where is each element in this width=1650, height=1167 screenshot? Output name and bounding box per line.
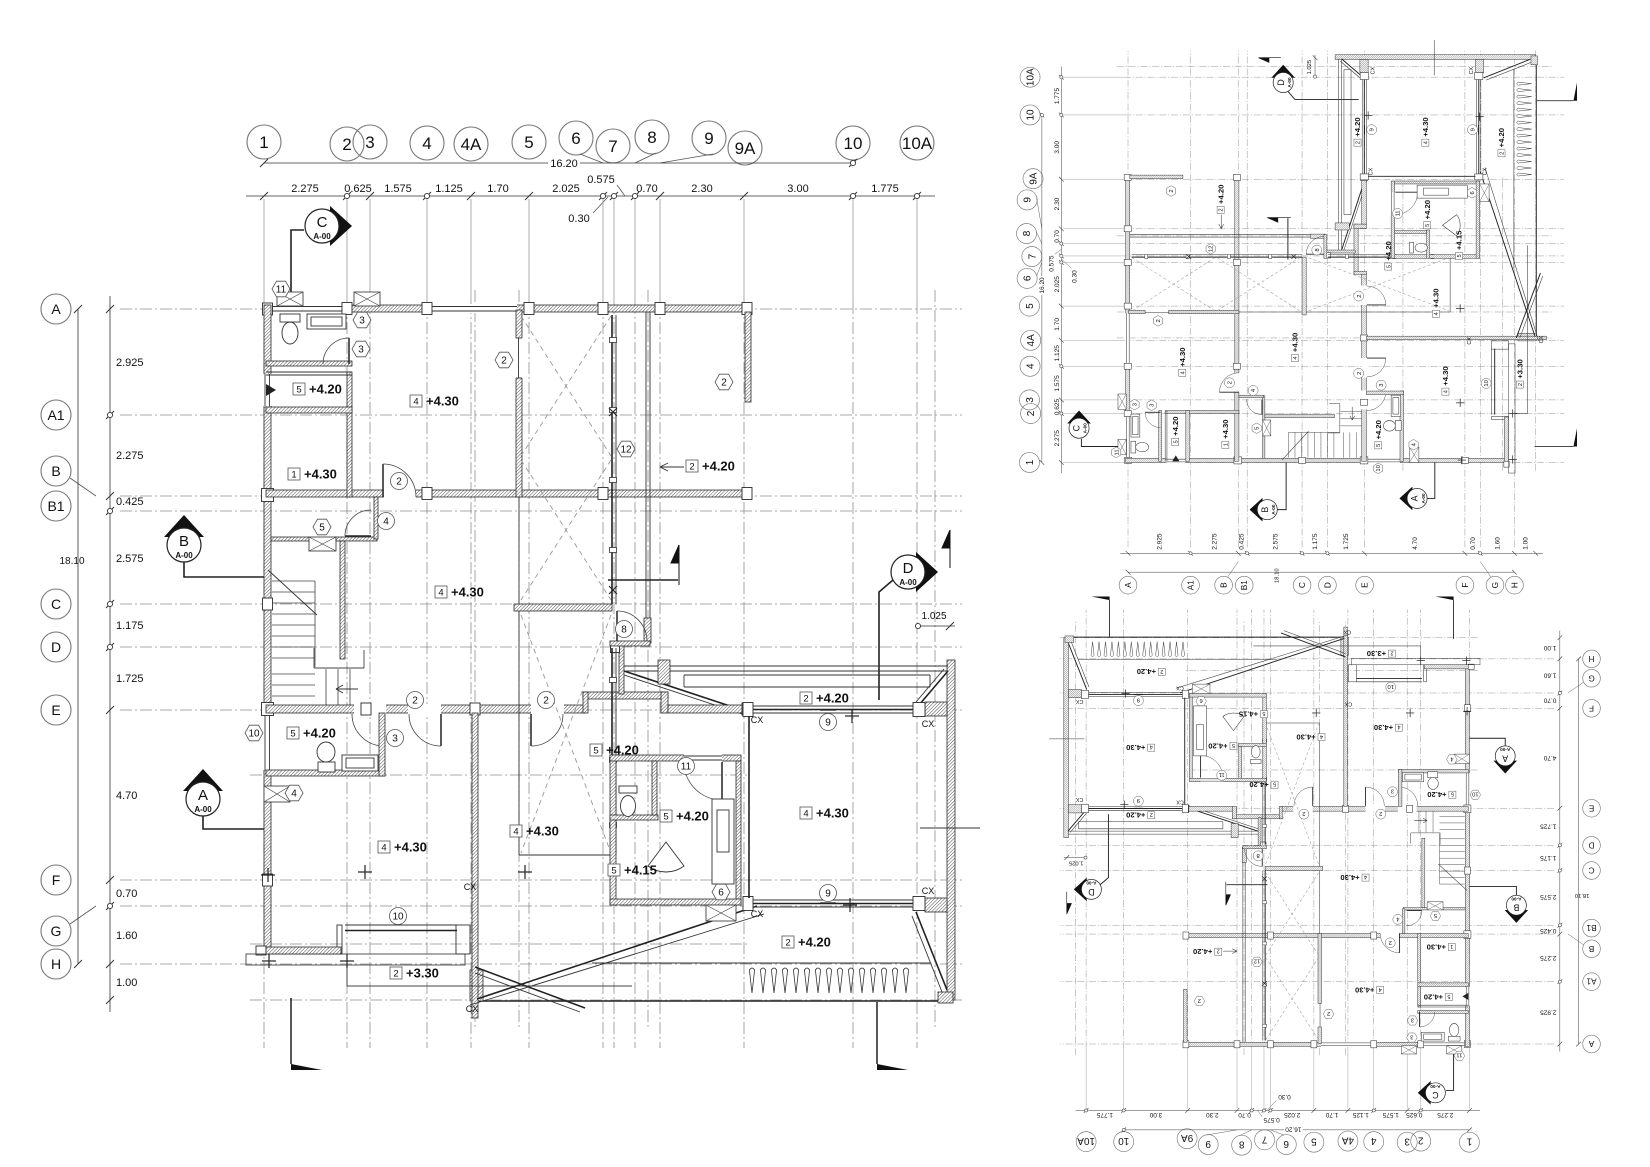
- svg-text:2: 2: [689, 462, 694, 473]
- svg-text:2.925: 2.925: [116, 357, 144, 369]
- svg-text:A-00: A-00: [194, 805, 212, 814]
- svg-text:+4.20: +4.20: [816, 691, 849, 706]
- svg-text:12: 12: [620, 445, 632, 456]
- svg-text:10A: 10A: [902, 134, 933, 153]
- svg-text:2: 2: [412, 696, 418, 707]
- svg-text:4A: 4A: [461, 135, 482, 154]
- svg-text:1.60: 1.60: [116, 930, 137, 942]
- svg-text:+4.30: +4.30: [304, 467, 337, 482]
- svg-text:+4.20: +4.20: [702, 459, 735, 474]
- svg-text:1.70: 1.70: [487, 183, 508, 195]
- svg-text:11: 11: [276, 285, 287, 296]
- svg-text:1: 1: [259, 133, 268, 152]
- svg-text:A1: A1: [47, 407, 64, 423]
- svg-text:C: C: [51, 596, 61, 612]
- svg-text:CX: CX: [922, 719, 935, 729]
- svg-text:2: 2: [501, 356, 507, 367]
- svg-text:+4.15: +4.15: [624, 863, 657, 878]
- svg-text:3: 3: [392, 734, 398, 745]
- svg-text:1.175: 1.175: [116, 620, 144, 632]
- svg-text:7: 7: [608, 137, 617, 156]
- svg-text:CX: CX: [464, 882, 477, 892]
- svg-text:2: 2: [721, 378, 727, 389]
- svg-text:E: E: [51, 702, 60, 718]
- svg-text:CX: CX: [751, 909, 764, 919]
- svg-text:2.275: 2.275: [291, 183, 319, 195]
- svg-text:5: 5: [611, 866, 616, 877]
- svg-text:2: 2: [342, 135, 351, 154]
- svg-text:CX: CX: [751, 715, 764, 725]
- svg-text:0.70: 0.70: [116, 888, 137, 900]
- svg-text:2.30: 2.30: [691, 183, 712, 195]
- svg-text:4: 4: [383, 517, 389, 528]
- svg-text:B1: B1: [47, 498, 64, 514]
- svg-text:5: 5: [663, 812, 668, 823]
- svg-text:CX: CX: [922, 886, 935, 896]
- svg-text:4: 4: [422, 134, 431, 153]
- svg-text:G: G: [51, 923, 62, 939]
- svg-text:+3.30: +3.30: [406, 966, 439, 981]
- svg-text:5: 5: [593, 746, 598, 757]
- svg-text:5: 5: [319, 523, 325, 534]
- svg-text:2: 2: [393, 969, 398, 980]
- svg-text:+4.30: +4.30: [526, 824, 559, 839]
- svg-text:A-00: A-00: [313, 232, 331, 241]
- svg-text:1.125: 1.125: [435, 183, 463, 195]
- svg-text:4.70: 4.70: [116, 790, 137, 802]
- svg-text:+4.30: +4.30: [451, 585, 484, 600]
- svg-text:1.725: 1.725: [116, 673, 144, 685]
- svg-text:4: 4: [291, 789, 297, 800]
- svg-text:+4.30: +4.30: [816, 806, 849, 821]
- svg-text:2.025: 2.025: [552, 183, 580, 195]
- svg-text:5: 5: [290, 729, 295, 740]
- svg-text:B: B: [179, 533, 189, 550]
- svg-text:F: F: [52, 872, 61, 888]
- svg-text:6: 6: [571, 129, 580, 148]
- svg-text:1.575: 1.575: [384, 183, 412, 195]
- svg-text:2: 2: [396, 477, 402, 488]
- svg-text:6: 6: [718, 888, 724, 899]
- svg-text:16.20: 16.20: [550, 158, 578, 170]
- svg-text:+4.20: +4.20: [798, 935, 831, 950]
- svg-text:CX: CX: [466, 1004, 479, 1014]
- svg-text:2.575: 2.575: [116, 553, 144, 565]
- svg-text:+4.20: +4.20: [676, 809, 709, 824]
- svg-text:1.00: 1.00: [116, 977, 137, 989]
- svg-text:1.025: 1.025: [921, 611, 946, 622]
- svg-text:10: 10: [844, 134, 863, 153]
- svg-text:A: A: [51, 301, 61, 317]
- svg-text:A-00: A-00: [899, 578, 917, 587]
- svg-text:3: 3: [358, 345, 364, 356]
- svg-text:4: 4: [438, 588, 443, 599]
- svg-text:10: 10: [248, 729, 260, 740]
- svg-text:+4.20: +4.20: [606, 743, 639, 758]
- svg-text:8: 8: [621, 625, 627, 636]
- svg-text:8: 8: [647, 128, 656, 147]
- svg-text:4: 4: [803, 809, 808, 820]
- svg-text:0.625: 0.625: [344, 183, 372, 195]
- svg-text:0.425: 0.425: [116, 496, 144, 508]
- svg-text:1.775: 1.775: [871, 183, 899, 195]
- svg-text:H: H: [51, 956, 61, 972]
- svg-text:3: 3: [365, 133, 374, 152]
- svg-text:10: 10: [392, 912, 404, 923]
- svg-text:C: C: [317, 214, 328, 231]
- svg-text:A-00: A-00: [175, 551, 193, 560]
- svg-text:0.575: 0.575: [587, 174, 615, 186]
- svg-text:5: 5: [524, 133, 533, 152]
- svg-text:D: D: [51, 639, 61, 655]
- svg-text:2: 2: [543, 696, 549, 707]
- svg-text:2.275: 2.275: [116, 450, 144, 462]
- svg-text:B: B: [51, 463, 60, 479]
- svg-text:1: 1: [291, 470, 296, 481]
- svg-text:+4.30: +4.30: [394, 840, 427, 855]
- svg-text:0.30: 0.30: [568, 213, 589, 225]
- svg-text:+4.20: +4.20: [303, 726, 336, 741]
- svg-text:+4.20: +4.20: [309, 382, 342, 397]
- svg-text:2: 2: [803, 694, 808, 705]
- svg-text:4: 4: [513, 827, 518, 838]
- svg-text:11: 11: [681, 762, 692, 773]
- svg-text:9: 9: [825, 718, 831, 729]
- svg-text:4: 4: [381, 843, 386, 854]
- svg-text:18.10: 18.10: [59, 556, 84, 567]
- svg-text:4: 4: [413, 397, 418, 408]
- svg-text:3: 3: [359, 316, 365, 327]
- svg-text:2: 2: [785, 938, 790, 949]
- svg-text:A: A: [198, 787, 208, 804]
- svg-text:3.00: 3.00: [787, 183, 808, 195]
- svg-text:9A: 9A: [735, 139, 756, 158]
- svg-text:+4.30: +4.30: [426, 394, 459, 409]
- svg-text:5: 5: [296, 385, 301, 396]
- svg-text:9: 9: [825, 889, 831, 900]
- svg-text:9: 9: [704, 129, 713, 148]
- svg-text:D: D: [903, 560, 914, 577]
- svg-text:0.70: 0.70: [636, 183, 657, 195]
